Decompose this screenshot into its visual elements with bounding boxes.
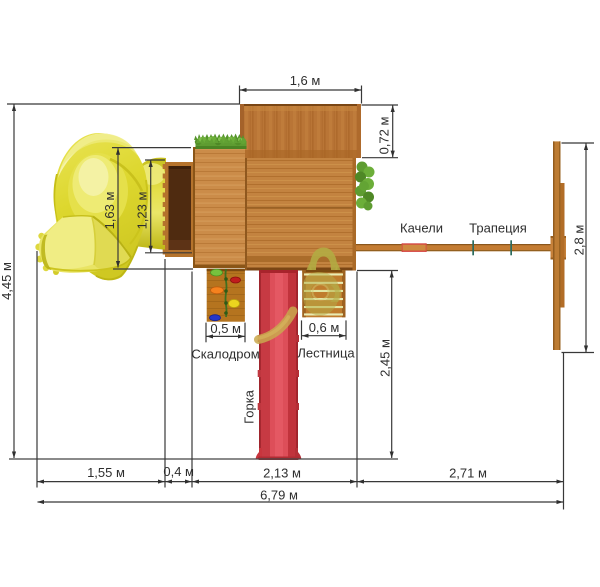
svg-text:1,63 м: 1,63 м [102,192,117,230]
svg-text:Качели: Качели [400,221,443,236]
svg-text:1,23 м: 1,23 м [135,192,150,230]
svg-text:6,79 м: 6,79 м [260,488,298,503]
svg-text:0,5 м: 0,5 м [210,321,241,336]
svg-text:2,71 м: 2,71 м [449,466,487,481]
svg-text:0,4 м: 0,4 м [163,464,194,479]
svg-text:2,45 м: 2,45 м [378,339,393,377]
svg-text:2,8 м: 2,8 м [572,225,587,256]
svg-text:0,72 м: 0,72 м [377,117,392,155]
svg-text:1,55 м: 1,55 м [87,465,125,480]
svg-text:4,45 м: 4,45 м [0,262,14,300]
svg-text:Лестница: Лестница [297,346,355,361]
svg-text:Трапеция: Трапеция [469,221,527,236]
svg-text:1,6 м: 1,6 м [290,73,321,88]
svg-text:Скалодром: Скалодром [191,347,259,362]
svg-text:2,13 м: 2,13 м [263,466,301,481]
svg-text:0,6 м: 0,6 м [309,320,340,335]
svg-text:Горка: Горка [242,389,257,424]
